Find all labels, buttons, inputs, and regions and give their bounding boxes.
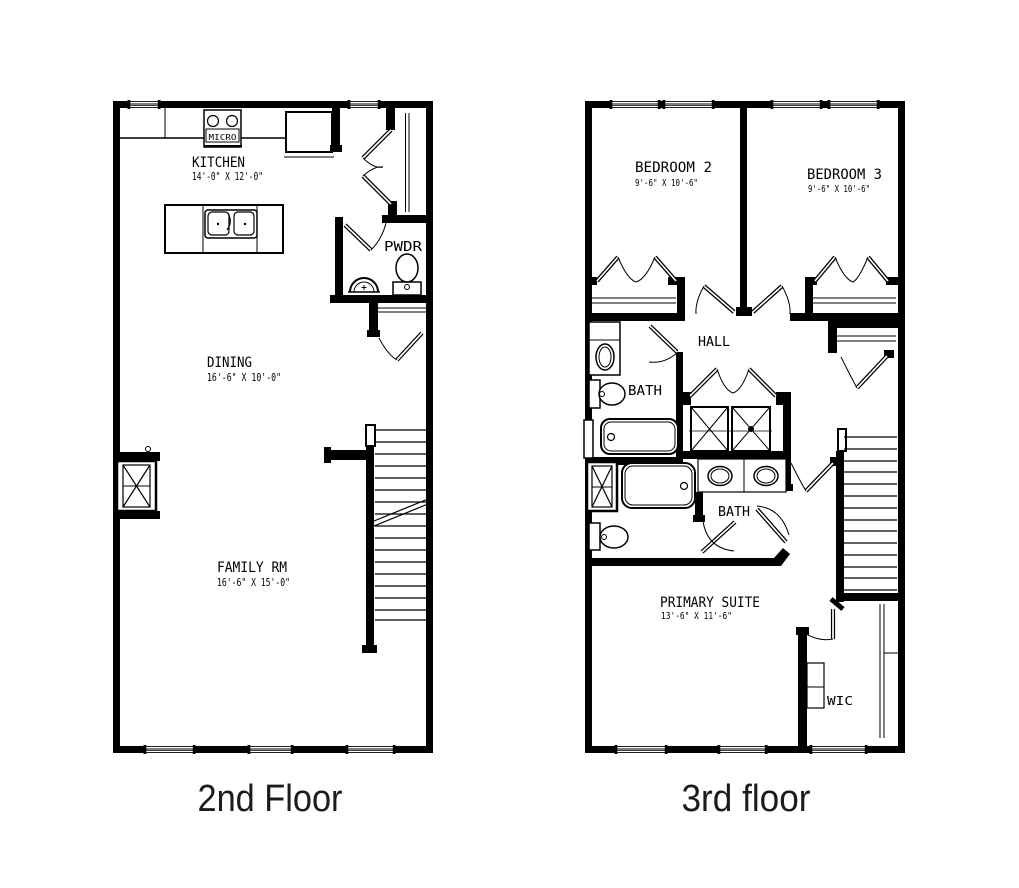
caption-3rd-floor: 3rd floor xyxy=(682,778,811,820)
caption-2nd-floor: 2nd Floor xyxy=(198,778,343,820)
kitchen-sink xyxy=(205,210,257,238)
bath-primary-toilet xyxy=(589,523,628,550)
room-label-dining: DINING xyxy=(207,355,252,371)
bedroom3-closet xyxy=(805,257,898,313)
floor-plan-3rd: BEDROOM 2 9'-6" X 10'-6" BEDROOM 3 9'-6"… xyxy=(584,100,905,820)
windows-bottom-2nd xyxy=(144,745,396,754)
entry-door-2nd xyxy=(379,333,422,360)
bath-upper-tub xyxy=(601,419,678,454)
staircase-3rd xyxy=(831,429,905,609)
room-label-family: FAMILY RM xyxy=(217,560,287,576)
powder-door xyxy=(345,223,386,250)
bath-upper-vanity xyxy=(589,322,620,375)
hall-closet-2nd xyxy=(367,303,428,360)
floor-plans-drawing: KITCHEN 14'-0" X 12'-0" MICRO PWDR DININ… xyxy=(0,0,1019,888)
wall-chase xyxy=(584,420,593,458)
room-label-bath-upper: BATH xyxy=(628,384,662,399)
bedroom2-door xyxy=(696,286,734,314)
chase-shaft-2nd xyxy=(115,447,160,520)
room-dims-bedroom3: 9'-6" X 10'-6" xyxy=(808,184,870,195)
bath-upper-door xyxy=(649,326,677,362)
bath-primary xyxy=(585,459,790,566)
label-micro: MICRO xyxy=(209,133,237,142)
room-label-hall: HALL xyxy=(698,335,730,350)
room-label-powder: PWDR xyxy=(384,240,422,255)
room-dims-primary-suite: 13'-6" X 11'-6" xyxy=(661,611,732,622)
bedroom2-closet xyxy=(585,257,685,321)
room-dims-family: 16'-6" X 15'-0" xyxy=(217,577,290,589)
washer xyxy=(691,407,728,451)
powder-room xyxy=(330,215,433,303)
room-dims-bedroom2: 9'-6" X 10'-6" xyxy=(635,178,698,189)
room-label-bedroom3: BEDROOM 3 xyxy=(807,167,882,183)
room-label-wic: WIC xyxy=(827,694,853,708)
wic-door xyxy=(803,609,833,640)
walk-in-closet xyxy=(796,604,898,748)
staircase-2nd xyxy=(324,425,428,653)
chase-shaft-3rd xyxy=(587,462,617,511)
bath-primary-vanity xyxy=(698,459,786,492)
windows-bottom-3rd xyxy=(615,745,868,754)
laundry-closet xyxy=(683,369,791,459)
powder-toilet xyxy=(393,254,421,295)
room-label-kitchen: KITCHEN xyxy=(192,155,245,171)
room-label-bedroom2: BEDROOM 2 xyxy=(635,160,712,176)
landing-door xyxy=(781,457,843,491)
suite-hall-door xyxy=(757,506,789,542)
room-dims-kitchen: 14'-0" X 12'-0" xyxy=(192,171,263,183)
stair-door-3rd xyxy=(841,356,887,388)
bedroom-divider-wall xyxy=(736,108,752,316)
bedroom3-door xyxy=(753,286,790,314)
bath-primary-tub xyxy=(622,463,695,508)
refrigerator xyxy=(284,112,334,157)
room-label-primary-suite: PRIMARY SUITE xyxy=(660,595,760,611)
powder-sink xyxy=(348,278,380,292)
room-label-bath-primary: BATH xyxy=(718,505,750,520)
bath-primary-door xyxy=(702,521,735,552)
dryer xyxy=(732,407,770,451)
floor-plan-2nd: KITCHEN 14'-0" X 12'-0" MICRO PWDR DININ… xyxy=(113,100,433,820)
room-dims-dining: 16'-6" X 10'-0" xyxy=(207,372,281,384)
bath-upper-toilet xyxy=(589,380,625,408)
entry-closet-bifold-doors xyxy=(363,108,409,217)
floor-plan-page: { "page": { "background": "#ffffff", "li… xyxy=(0,0,1019,888)
